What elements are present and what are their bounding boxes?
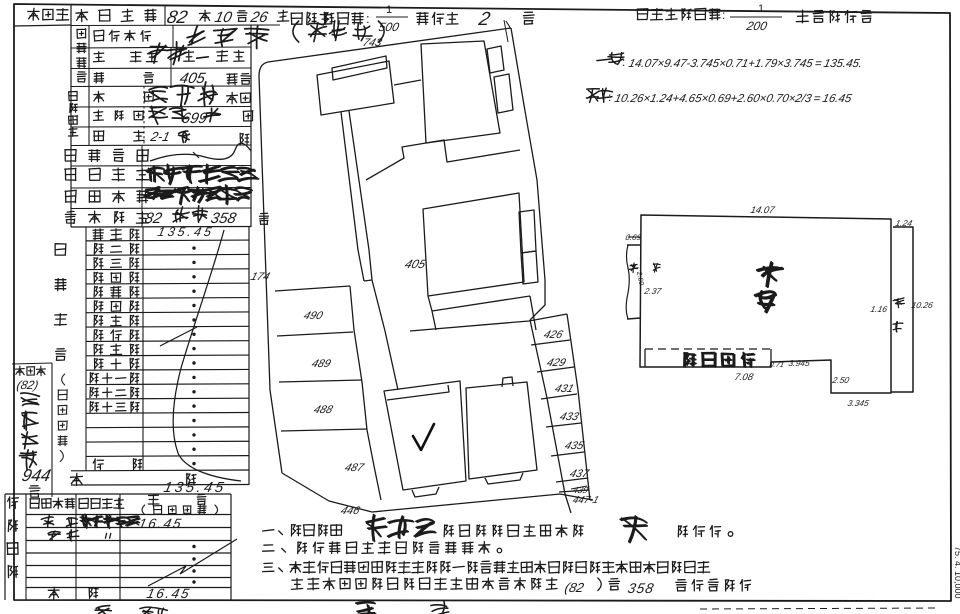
svg-text:75. 4. 10,000: 75. 4. 10,000 <box>953 546 960 599</box>
svg-text:1.16: 1.16 <box>870 304 889 314</box>
svg-text:82: 82 <box>165 7 189 27</box>
svg-text:944: 944 <box>20 465 53 485</box>
svg-text:10.26×1.24+4.65×0.69+2.60×0.70: 10.26×1.24+4.65×0.69+2.60×0.70×2/3 = 16.… <box>613 92 853 105</box>
svg-text:14.07×9.47-3.745×0.71+1.79×3.7: 14.07×9.47-3.745×0.71+1.79×3.745 = 135.4… <box>627 57 863 70</box>
svg-text:2-1: 2-1 <box>148 129 171 144</box>
svg-text::: : <box>622 55 625 69</box>
svg-text:(82: (82 <box>563 580 586 595</box>
svg-text:1.24: 1.24 <box>895 218 914 228</box>
svg-text:439: 439 <box>571 485 589 495</box>
svg-text:16.45: 16.45 <box>137 516 184 531</box>
svg-text:10.26: 10.26 <box>911 300 935 310</box>
svg-text:447-1: 447-1 <box>571 495 600 506</box>
svg-text:0.71: 0.71 <box>769 360 785 369</box>
svg-text::: : <box>366 11 370 26</box>
svg-text:7.08: 7.08 <box>733 372 754 383</box>
svg-text:16.45: 16.45 <box>145 586 192 601</box>
svg-text:500: 500 <box>377 20 400 34</box>
svg-text:174: 174 <box>249 271 271 283</box>
svg-text:200: 200 <box>744 19 768 33</box>
svg-text:135.45: 135.45 <box>156 225 215 239</box>
svg-text:431: 431 <box>553 383 575 395</box>
svg-text:1: 1 <box>758 3 764 15</box>
svg-text::: : <box>608 90 611 104</box>
svg-text:3.945: 3.945 <box>788 358 812 368</box>
svg-text::: : <box>722 8 725 22</box>
svg-text:358: 358 <box>626 580 656 596</box>
svg-text:699: 699 <box>180 110 209 127</box>
svg-text:(82): (82) <box>15 378 39 392</box>
svg-text:1: 1 <box>386 4 392 16</box>
svg-text:0.69: 0.69 <box>625 233 643 242</box>
svg-text:3.345: 3.345 <box>847 398 871 408</box>
svg-text:2.50: 2.50 <box>831 375 851 385</box>
svg-text:14.07: 14.07 <box>749 205 776 216</box>
svg-text:405: 405 <box>178 70 207 87</box>
svg-text:2.37: 2.37 <box>643 286 664 296</box>
